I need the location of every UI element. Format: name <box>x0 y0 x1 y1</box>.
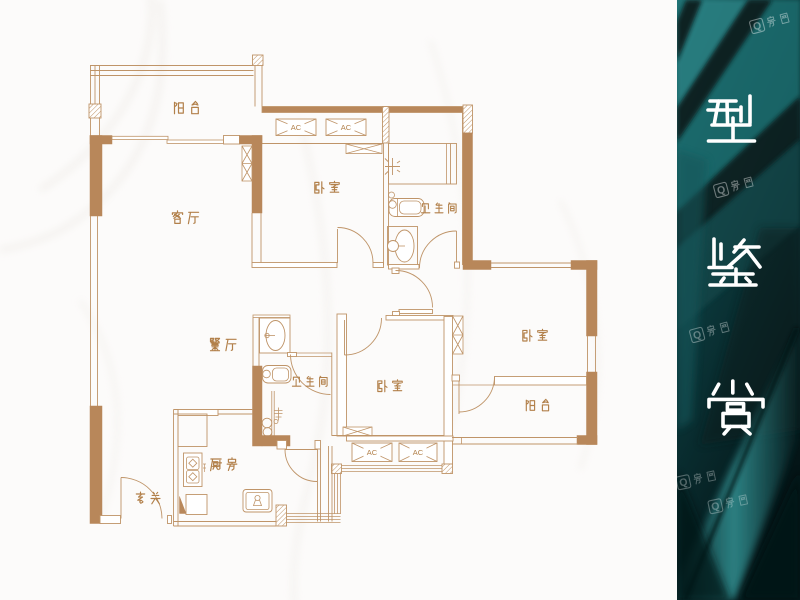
svg-text:AC: AC <box>367 448 378 457</box>
svg-text:AC: AC <box>291 123 302 132</box>
svg-text:AC: AC <box>341 123 352 132</box>
svg-text:AC: AC <box>413 448 424 457</box>
